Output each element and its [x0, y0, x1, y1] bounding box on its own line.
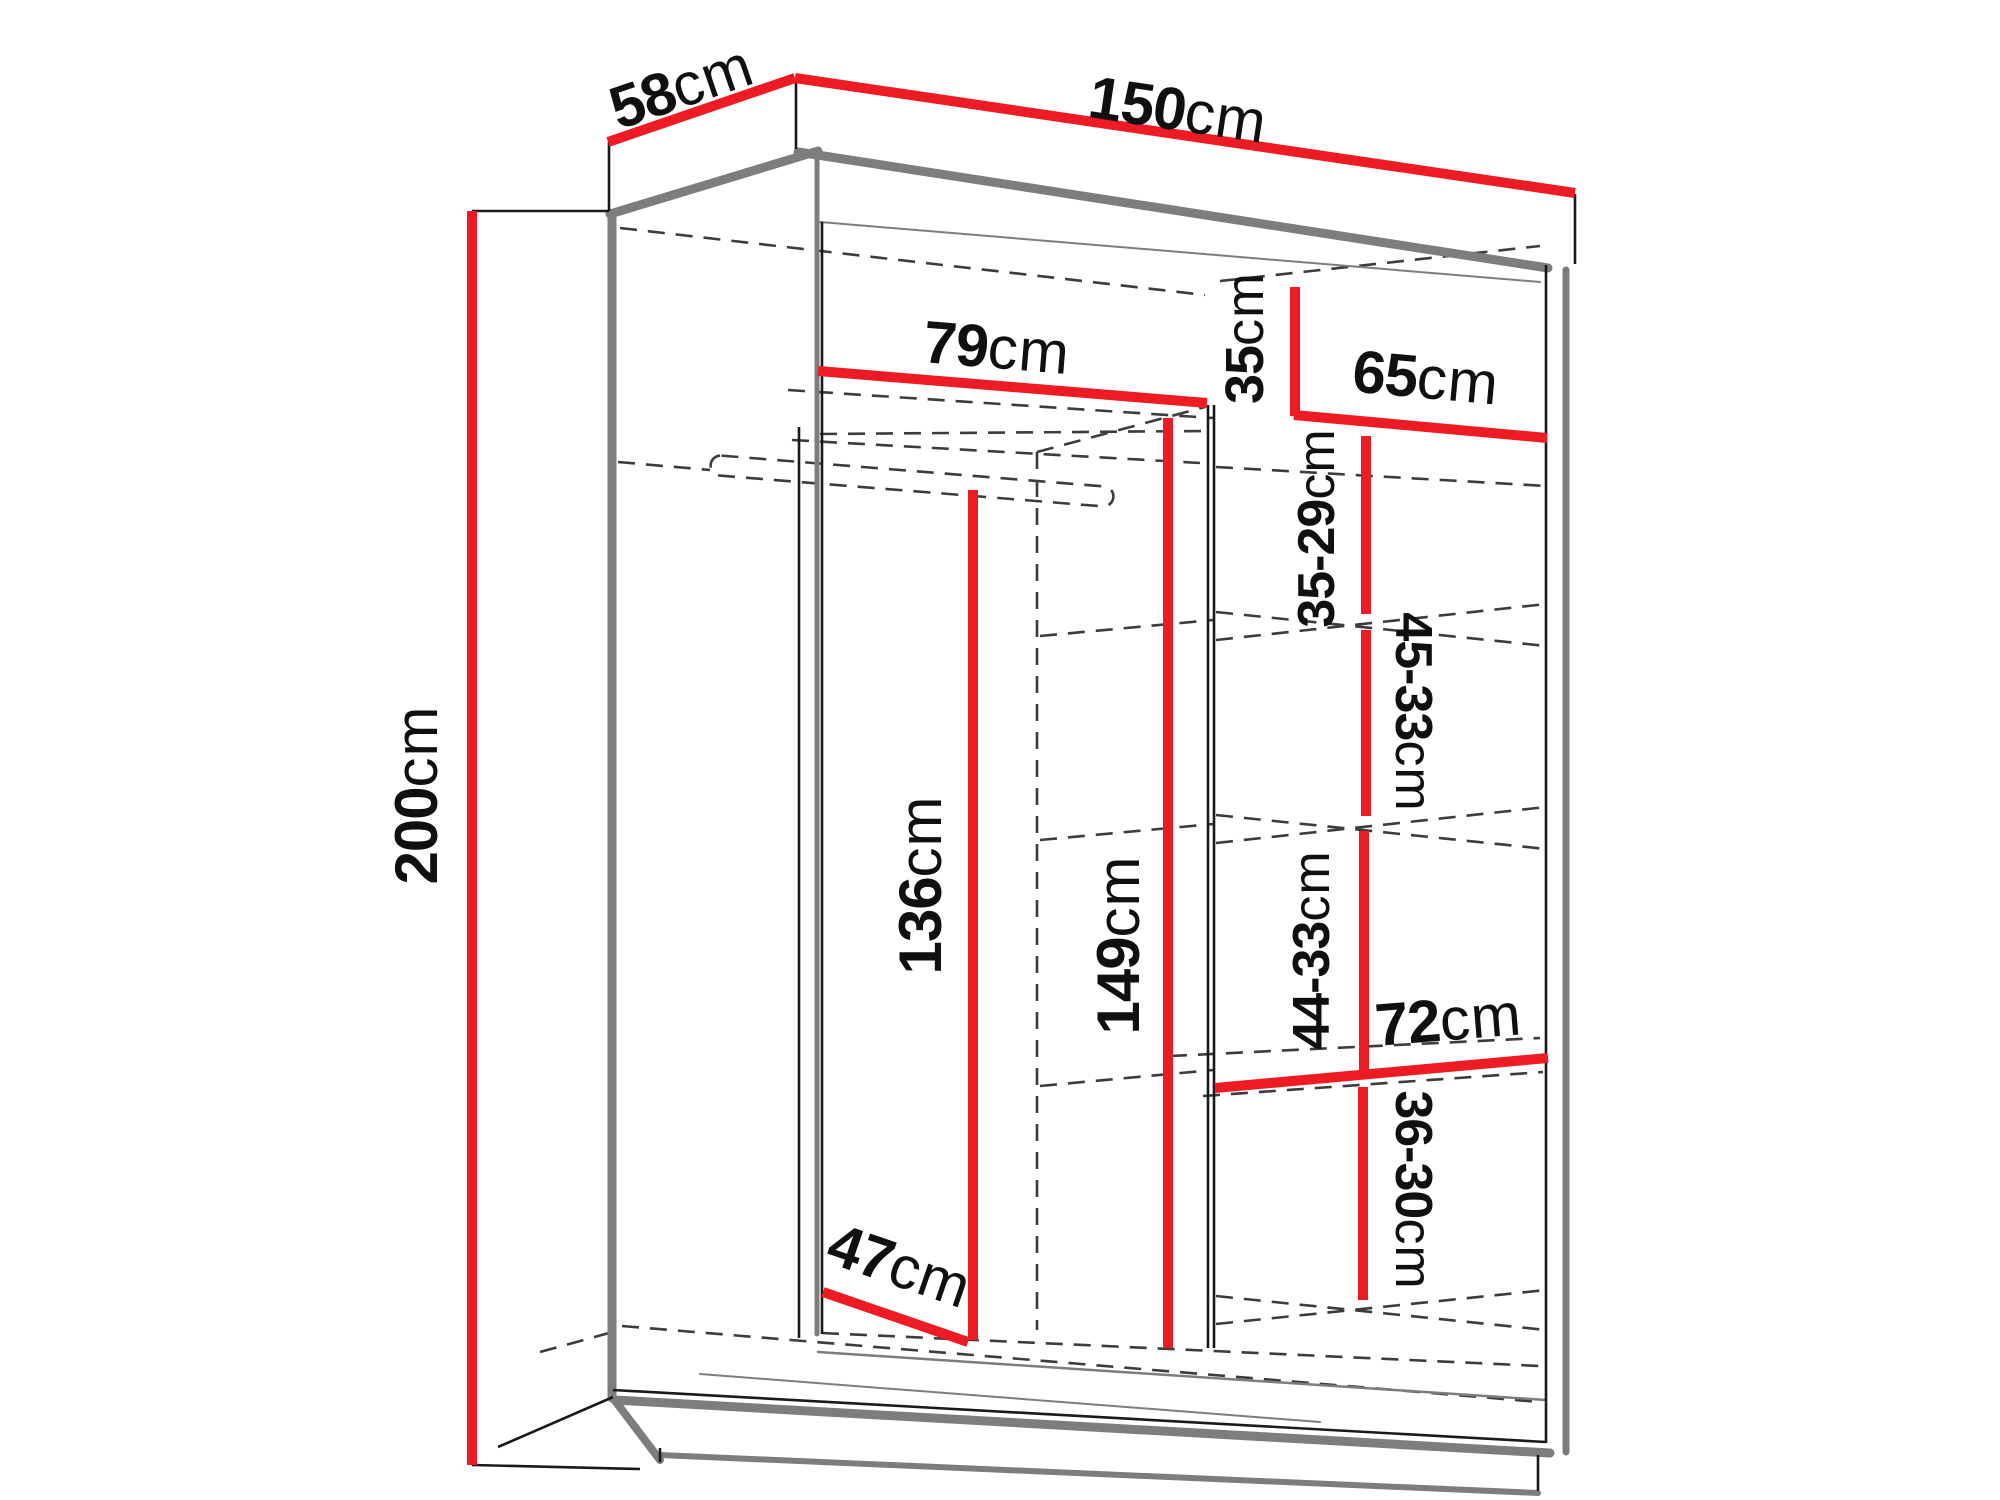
dim-label-44-33: 44-33cm	[1283, 850, 1341, 1049]
hidden-edge	[792, 440, 1200, 463]
dim-label-width: 150cm	[1085, 63, 1272, 156]
dim-label-72: 72cm	[1373, 980, 1525, 1059]
dim-label-136: 136cm	[887, 795, 954, 974]
shelf-hidden-edge	[1040, 1070, 1213, 1086]
dim-label-79: 79cm	[921, 308, 1073, 387]
room-floor-line	[498, 1397, 613, 1447]
shelf-hidden-edge	[1216, 1296, 1546, 1330]
interior-top-left-edge	[610, 151, 818, 214]
dim-label-height: 200cm	[383, 705, 450, 884]
hidden-edge	[820, 431, 1205, 434]
shelf-hidden-edge	[1216, 807, 1546, 843]
clothes-rail-icon	[710, 455, 1114, 507]
interior-floor-front-edge	[818, 1352, 1546, 1400]
dim-label-36-30: 36-30cm	[1384, 1090, 1442, 1289]
shelf-hidden-edge	[1216, 604, 1546, 640]
dim-label-45-33: 45-33cm	[1384, 612, 1442, 811]
bottom-edge-shadow	[615, 1400, 1550, 1453]
wardrobe-dimension-diagram: 58cm 150cm 200cm 79cm 35cm 65cm 35-29cm …	[0, 0, 2000, 1500]
dim-label-35-29: 35-29cm	[1288, 428, 1346, 627]
hidden-edge	[620, 228, 1205, 295]
hidden-edge	[1037, 407, 1205, 452]
dim-label-35: 35cm	[1215, 272, 1275, 404]
dim-label-149: 149cm	[1085, 855, 1152, 1034]
dimension-labels-group: 58cm 150cm 200cm 79cm 35cm 65cm 35-29cm …	[383, 31, 1524, 1321]
dim-label-47: 47cm	[819, 1210, 980, 1321]
shelf-hidden-edge	[1216, 815, 1546, 849]
floor-hidden-edge	[822, 1333, 1540, 1366]
shelf-hidden-edge	[1216, 1290, 1546, 1324]
bottom-left-foot	[613, 1398, 660, 1460]
hidden-edge	[618, 462, 710, 470]
plinth-edge	[660, 1455, 1538, 1493]
shelf-hidden-edge	[1216, 612, 1546, 646]
dim-label-depth: 58cm	[601, 31, 762, 142]
diagram-canvas: 58cm 150cm 200cm 79cm 35cm 65cm 35-29cm …	[0, 0, 2000, 1500]
shelf-hidden-edge	[1040, 824, 1213, 840]
hidden-edge	[1216, 467, 1546, 486]
bottom-board-edge	[700, 1374, 1320, 1422]
dim-label-65: 65cm	[1350, 338, 1502, 418]
shelf-hidden-edge	[1040, 620, 1213, 636]
witness-line-bottom	[472, 1465, 640, 1469]
bottom-front-edge	[613, 1390, 1546, 1442]
